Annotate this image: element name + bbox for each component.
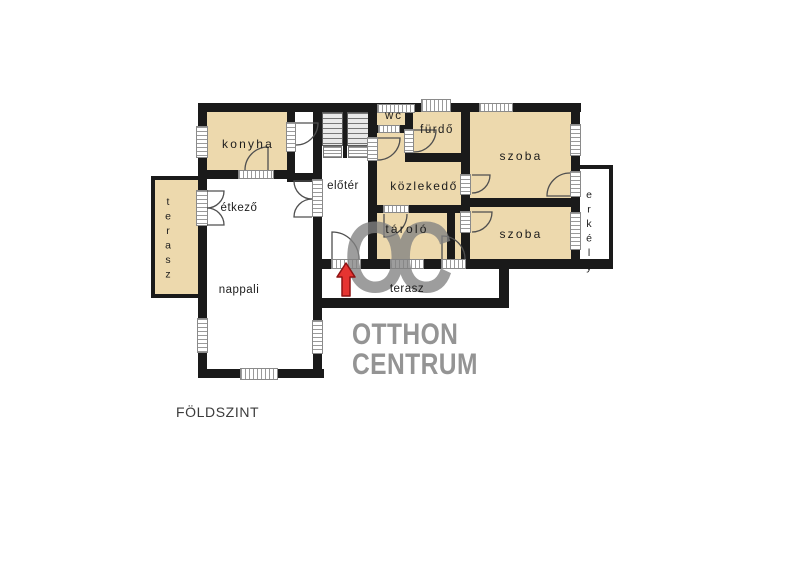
door-arc	[294, 181, 312, 199]
floorplan-image: OC OTTHON CENTRUM konyha étkező nappali …	[0, 0, 800, 565]
door-threshold-symbol	[441, 259, 466, 269]
window-symbol	[570, 212, 581, 250]
door-threshold-symbol	[367, 137, 378, 161]
stairs-icon	[347, 112, 369, 146]
window-symbol	[421, 99, 451, 112]
door-threshold-symbol	[238, 170, 274, 179]
door-threshold-symbol	[378, 125, 400, 133]
window-symbol	[197, 318, 208, 353]
wall	[461, 198, 580, 207]
wall	[151, 176, 155, 298]
room-label-terasz-left: terasz	[162, 196, 174, 283]
floor-title: FÖLDSZINT	[176, 404, 259, 420]
room-label-erkely: erkély	[583, 189, 595, 276]
wall	[151, 176, 202, 180]
room-kozlekedo	[373, 128, 465, 208]
door-threshold-symbol	[460, 174, 471, 195]
wall	[499, 269, 509, 308]
room-label-eloter: előtér	[327, 180, 359, 192]
door-threshold-symbol	[404, 129, 414, 153]
room-label-furdo: fürdő	[420, 124, 454, 136]
door-threshold-symbol	[460, 211, 471, 233]
room-label-szoba-top: szoba	[499, 149, 542, 163]
room-label-szoba-bottom: szoba	[499, 227, 542, 241]
room-label-terasz-bottom: terasz	[390, 283, 424, 295]
door-threshold-symbol	[570, 171, 581, 197]
room-label-kozlekedo: közlekedő	[390, 179, 458, 193]
room-label-wc: wc	[385, 110, 403, 122]
stairs-landing-icon	[323, 146, 342, 158]
watermark-line1: OTTHON	[352, 320, 458, 350]
stairs-landing-icon	[348, 146, 368, 158]
wall	[609, 165, 613, 269]
wall	[405, 153, 468, 162]
door-arc	[294, 199, 312, 217]
window-symbol	[240, 368, 278, 380]
wall	[343, 112, 347, 158]
room-label-tarolo: tároló	[385, 222, 428, 236]
window-symbol	[196, 126, 208, 158]
stairs-icon	[322, 112, 343, 146]
window-symbol	[312, 320, 323, 354]
room-label-nappali: nappali	[219, 284, 260, 296]
wall	[447, 205, 455, 264]
double-door-symbol	[312, 179, 323, 217]
door-threshold-symbol	[286, 122, 296, 152]
window-symbol	[570, 124, 581, 156]
watermark-line2: CENTRUM	[352, 350, 478, 380]
room-label-etkezo: étkező	[221, 202, 258, 214]
wall	[151, 294, 202, 298]
room-label-konyha: konyha	[222, 137, 274, 151]
window-symbol	[479, 103, 513, 112]
double-door-symbol	[196, 190, 208, 226]
